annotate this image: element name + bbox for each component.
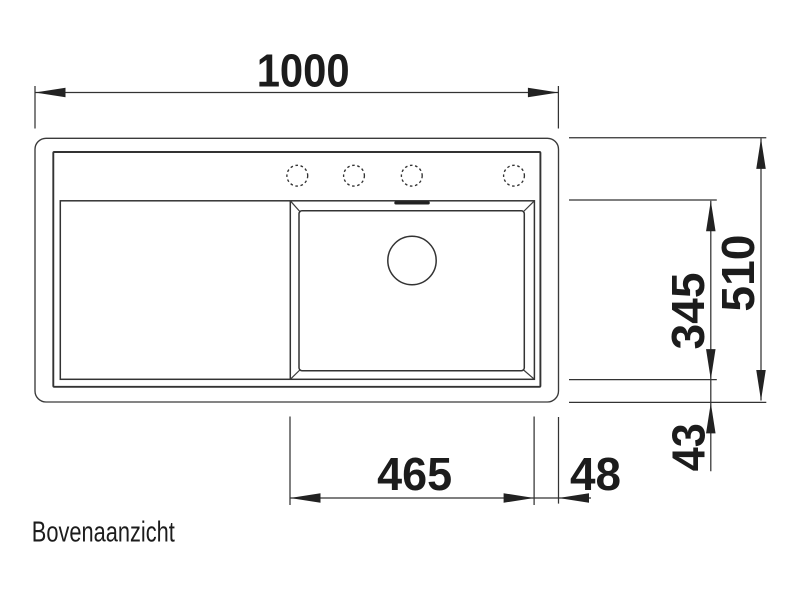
svg-text:465: 465: [377, 448, 452, 500]
svg-text:510: 510: [712, 235, 764, 312]
svg-text:43: 43: [663, 423, 715, 471]
svg-text:Bovenaanzicht: Bovenaanzicht: [32, 517, 175, 549]
svg-text:345: 345: [662, 273, 714, 350]
svg-text:48: 48: [570, 448, 621, 500]
svg-text:1000: 1000: [257, 44, 350, 96]
